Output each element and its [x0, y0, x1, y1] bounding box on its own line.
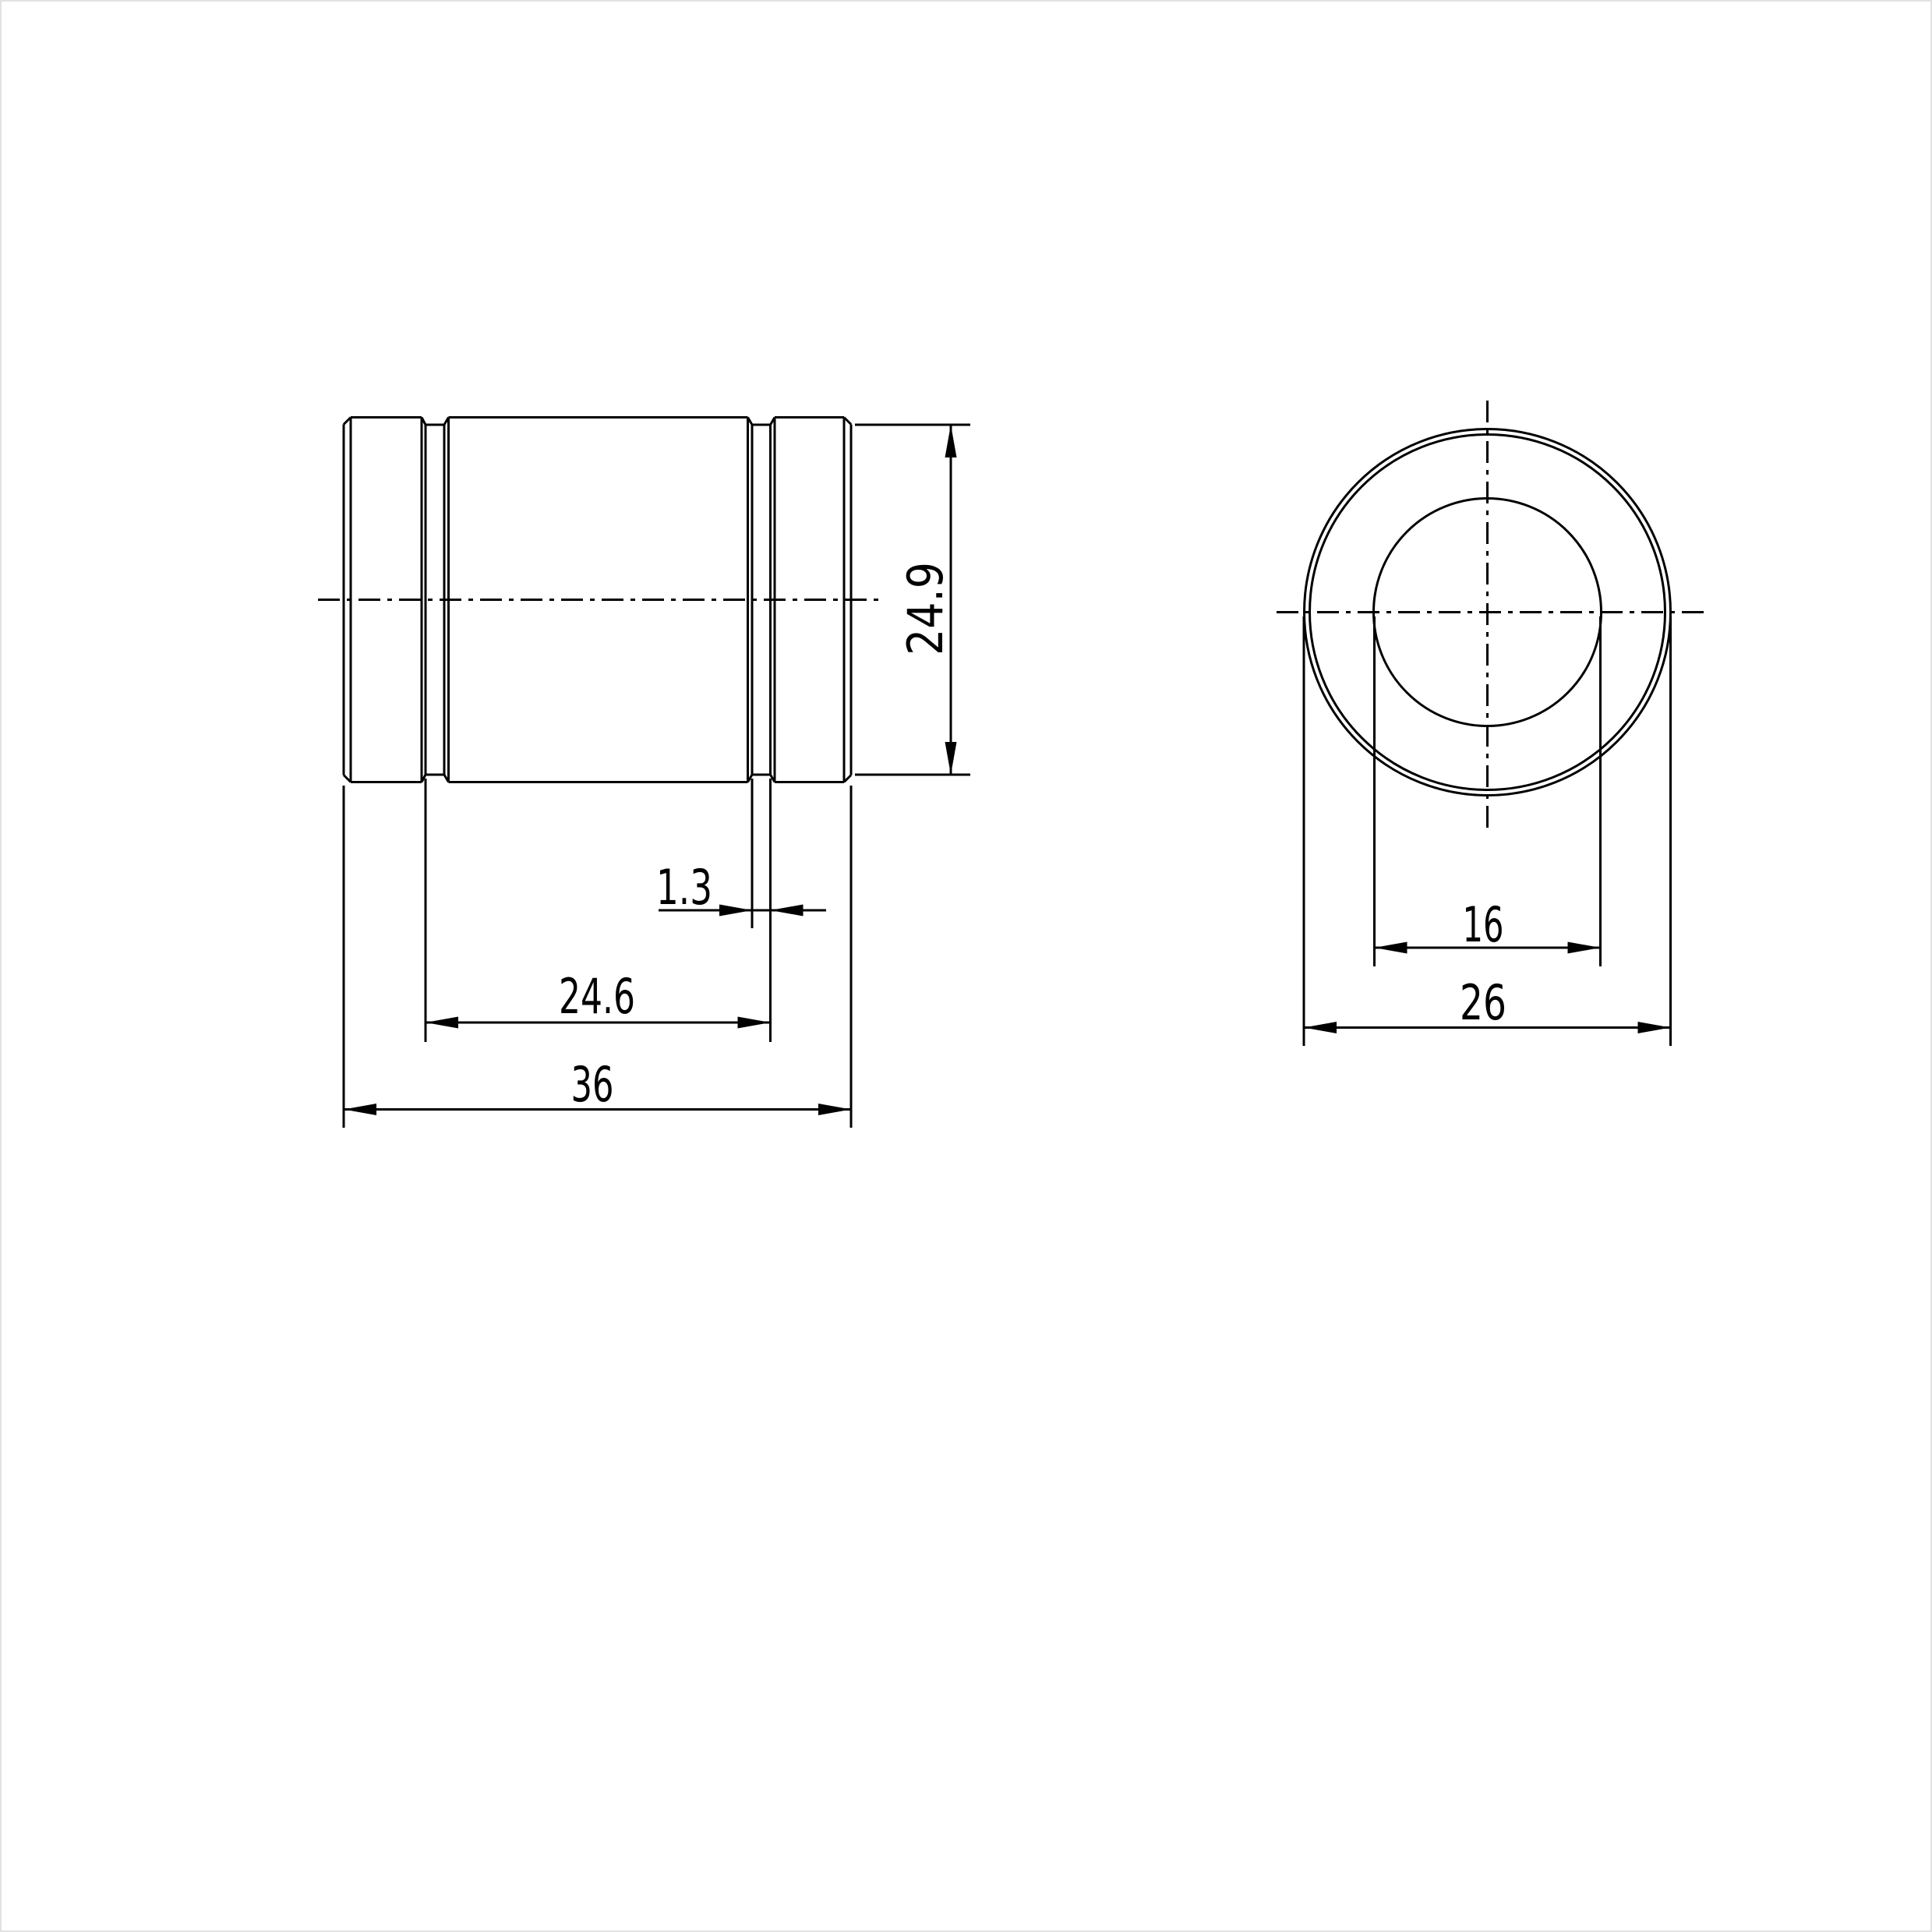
- dim-label-outer-diameter: 26: [1460, 974, 1506, 1031]
- arrowhead: [1304, 1022, 1337, 1033]
- arrowhead: [426, 1017, 458, 1029]
- side-view: [318, 418, 879, 782]
- arrowhead: [1568, 942, 1601, 954]
- arrowhead: [738, 1017, 771, 1029]
- arrowhead: [818, 1104, 851, 1115]
- arrowhead: [719, 905, 752, 917]
- dim-label-overall-length: 36: [571, 1056, 614, 1113]
- end-view: [1277, 401, 1704, 828]
- dim-label-groove-width: 1.3: [656, 859, 712, 916]
- dim-label-groove-span: 24.6: [559, 968, 635, 1025]
- arrowhead: [945, 742, 957, 775]
- dimension-annotations: 3624.61.324.91626: [344, 425, 1671, 1128]
- arrowhead: [1638, 1022, 1671, 1033]
- drawing-page: 3624.61.324.91626: [0, 0, 1932, 1932]
- page-frame: [1, 1, 1931, 1931]
- arrowhead: [344, 1104, 376, 1115]
- dim-label-bore-diameter: 16: [1463, 896, 1504, 953]
- arrowhead: [771, 905, 804, 917]
- arrowhead: [1375, 942, 1407, 954]
- arrowhead: [945, 425, 957, 457]
- technical-drawing-canvas: 3624.61.324.91626: [0, 0, 1932, 1932]
- dim-label-groove-diameter: 24.9: [897, 562, 954, 655]
